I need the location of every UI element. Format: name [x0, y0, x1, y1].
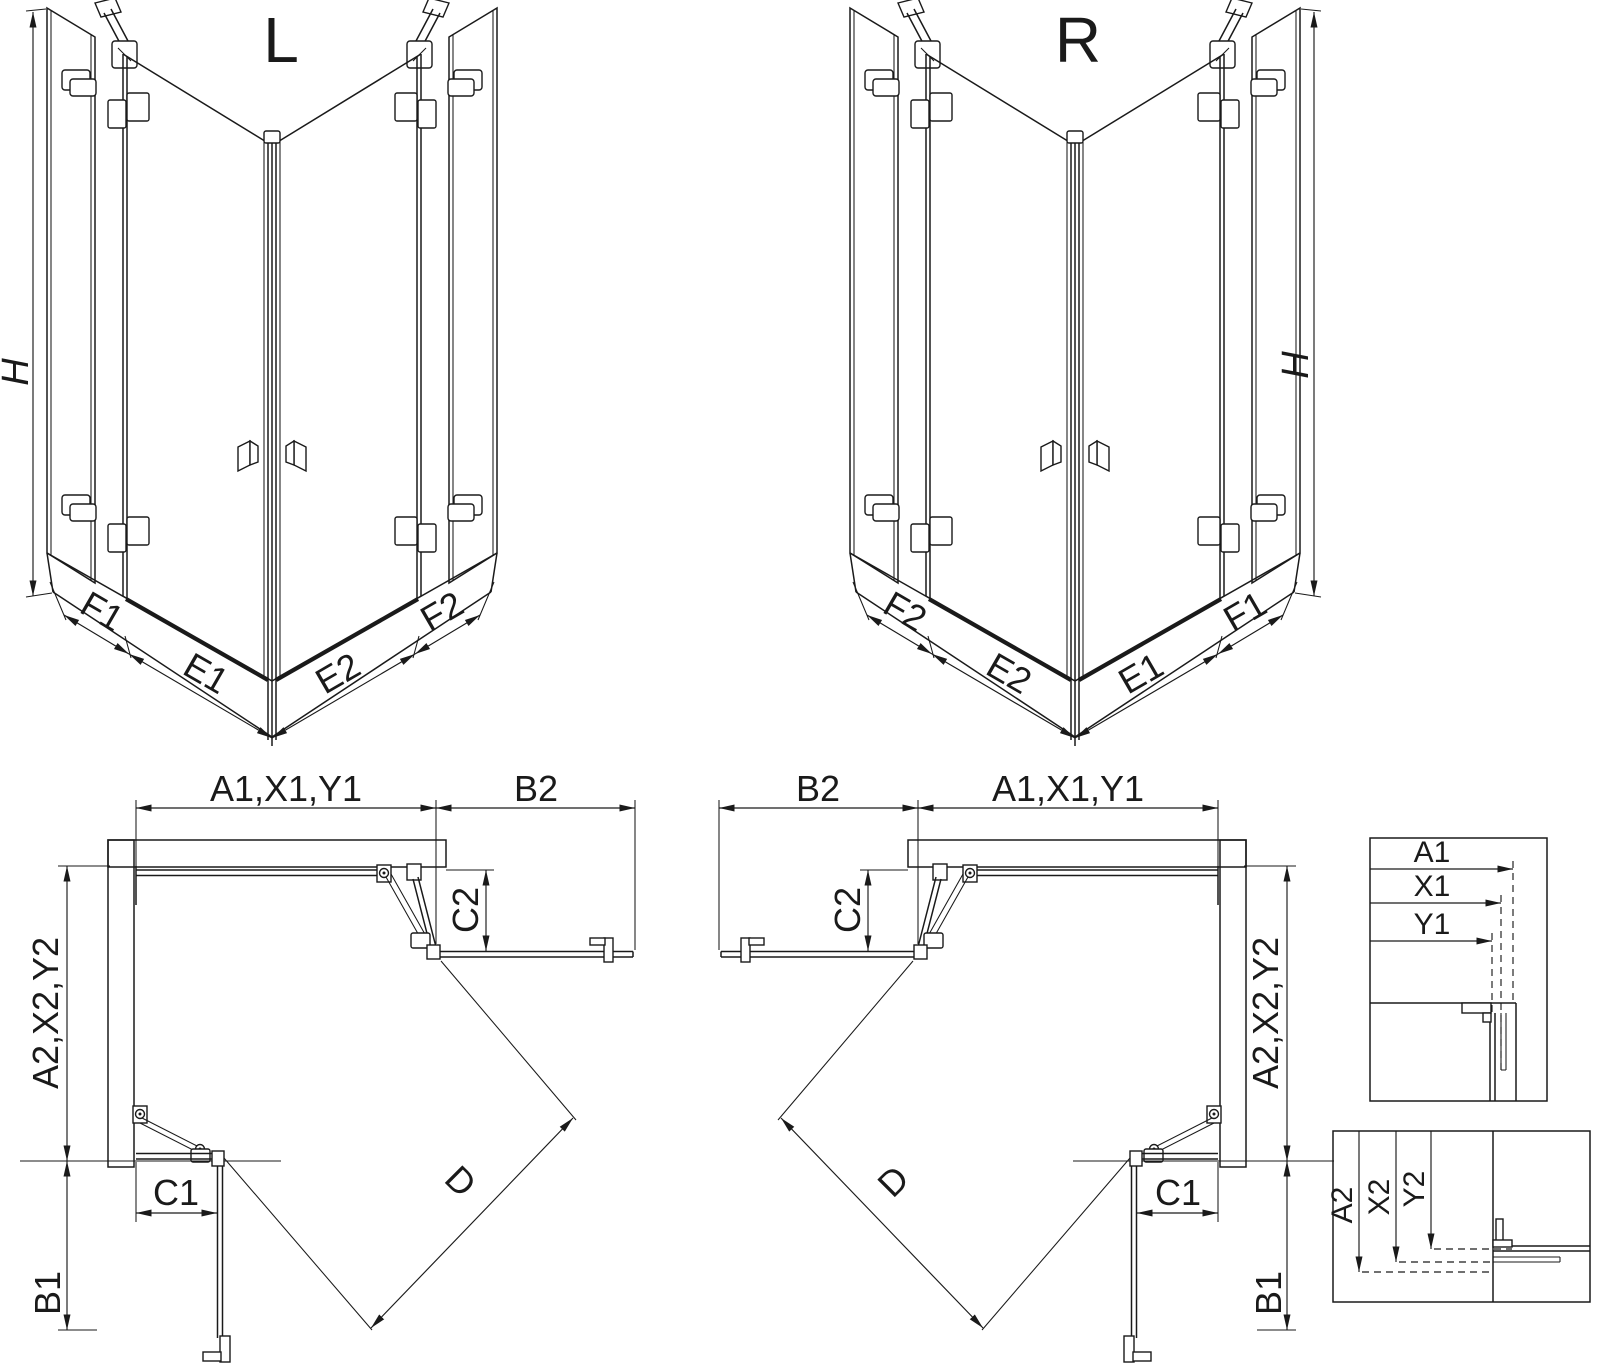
detail-depths-box: A2 X2 Y2	[1326, 1131, 1590, 1302]
view-l-3d: L H F1 E1 E2 F2	[0, 0, 497, 746]
plan-r-dim-c2: C2	[827, 887, 868, 933]
view-r-3d: R H F2 E2 E1 F1	[850, 0, 1321, 746]
detail-bottom-y2: Y2	[1398, 1171, 1431, 1208]
view-r-dim-height: H	[1275, 351, 1317, 379]
detail-top-x1: X1	[1414, 870, 1451, 903]
plan-l-dim-c2: C2	[445, 887, 486, 933]
plan-l: A1,X1,Y1 B2 C2 A2,X2,Y2 C1 B1 D	[20, 768, 635, 1362]
plan-r: B2 A1,X1,Y1 C2 A2,X2,Y2 C1 B1 D	[719, 768, 1334, 1362]
view-r-dim-f2: F2	[877, 583, 934, 640]
drawing-canvas: L H F1 E1 E2 F2 R H F2 E2 E1 F1 A1,X1,Y1…	[0, 0, 1600, 1371]
plan-l-dim-a1x1y1: A1,X1,Y1	[210, 768, 362, 809]
view-l-title: L	[263, 4, 299, 76]
plan-l-dim-c1: C1	[153, 1172, 199, 1213]
view-r-dim-f1: F1	[1216, 583, 1273, 640]
plan-l-dim-b1: B1	[27, 1271, 68, 1315]
plan-l-dim-b2: B2	[514, 768, 558, 809]
wall-top-hatch	[108, 840, 446, 867]
view-l-dim-e1: E1	[177, 644, 236, 702]
detail-top-a1: A1	[1414, 836, 1451, 869]
plan-r-dim-d: D	[869, 1157, 916, 1204]
view-l-dim-f2: F2	[413, 583, 470, 640]
detail-widths-box: A1 X1 Y1	[1370, 836, 1547, 1101]
plan-r-dim-a2x2y2: A2,X2,Y2	[1245, 937, 1286, 1089]
view-l-dim-e2: E2	[308, 644, 367, 702]
view-l-dim-height: H	[0, 358, 37, 386]
detail-top-y1: Y1	[1414, 908, 1451, 941]
view-r-title: R	[1055, 4, 1101, 76]
plan-r-dim-b1: B1	[1248, 1271, 1289, 1315]
plan-r-dim-a1x1y1: A1,X1,Y1	[992, 768, 1144, 809]
wall-top-hatch	[908, 840, 1246, 867]
plan-l-dim-a2x2y2: A2,X2,Y2	[25, 937, 66, 1089]
shower-enclosure-technical-drawing: L H F1 E1 E2 F2 R H F2 E2 E1 F1 A1,X1,Y1…	[0, 0, 1600, 1371]
view-l-dim-f1: F1	[74, 583, 131, 640]
view-r-dim-e2: E2	[980, 644, 1039, 702]
plan-r-dim-c1: C1	[1155, 1172, 1201, 1213]
plan-r-dim-b2: B2	[796, 768, 840, 809]
wall-side-hatch	[108, 840, 134, 1167]
plan-l-dim-d: D	[437, 1157, 484, 1204]
detail-bottom-a2: A2	[1326, 1187, 1359, 1224]
wall-side-hatch	[1220, 840, 1246, 1167]
detail-bottom-x2: X2	[1363, 1179, 1396, 1216]
view-r-dim-e1: E1	[1111, 644, 1170, 702]
